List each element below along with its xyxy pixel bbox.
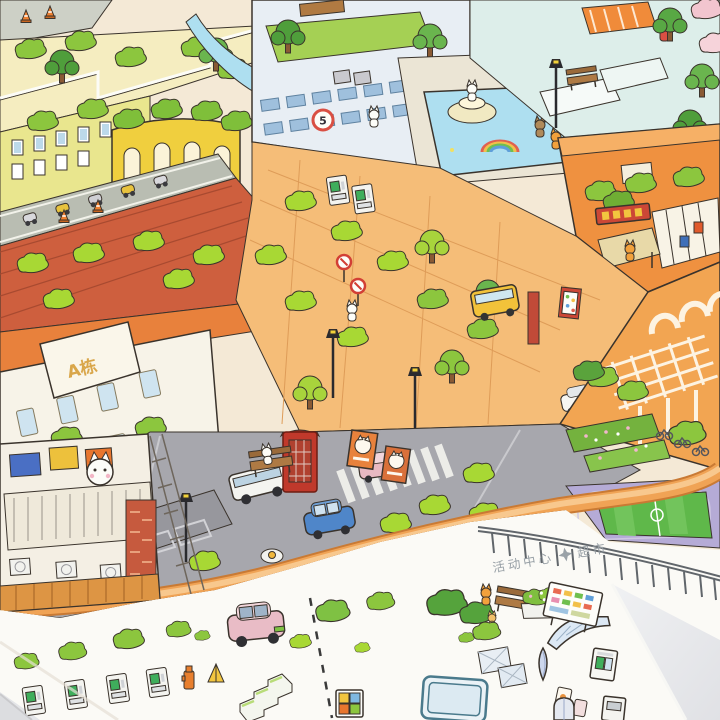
cat-poster-billboard	[381, 446, 410, 483]
sticker-appliance	[590, 648, 618, 681]
sticker-stained-window	[336, 690, 363, 717]
sticker-arch-window	[554, 698, 574, 720]
cat-poster-billboard	[347, 430, 378, 469]
red-column	[528, 292, 539, 344]
sticker-large-window-frame	[421, 676, 488, 720]
fried-egg-road-art	[261, 549, 283, 563]
cafe-chair	[694, 222, 703, 233]
illustration-canvas: A栋	[0, 0, 720, 720]
cafe-chair	[680, 236, 689, 247]
poster-photo: A栋	[0, 0, 720, 720]
svg-text:5: 5	[319, 115, 327, 128]
city-illustration: A栋	[0, 0, 720, 622]
sticker-appliance	[601, 696, 625, 720]
speed-limit-sign: 5	[313, 110, 333, 130]
poster-billboard	[558, 287, 581, 319]
